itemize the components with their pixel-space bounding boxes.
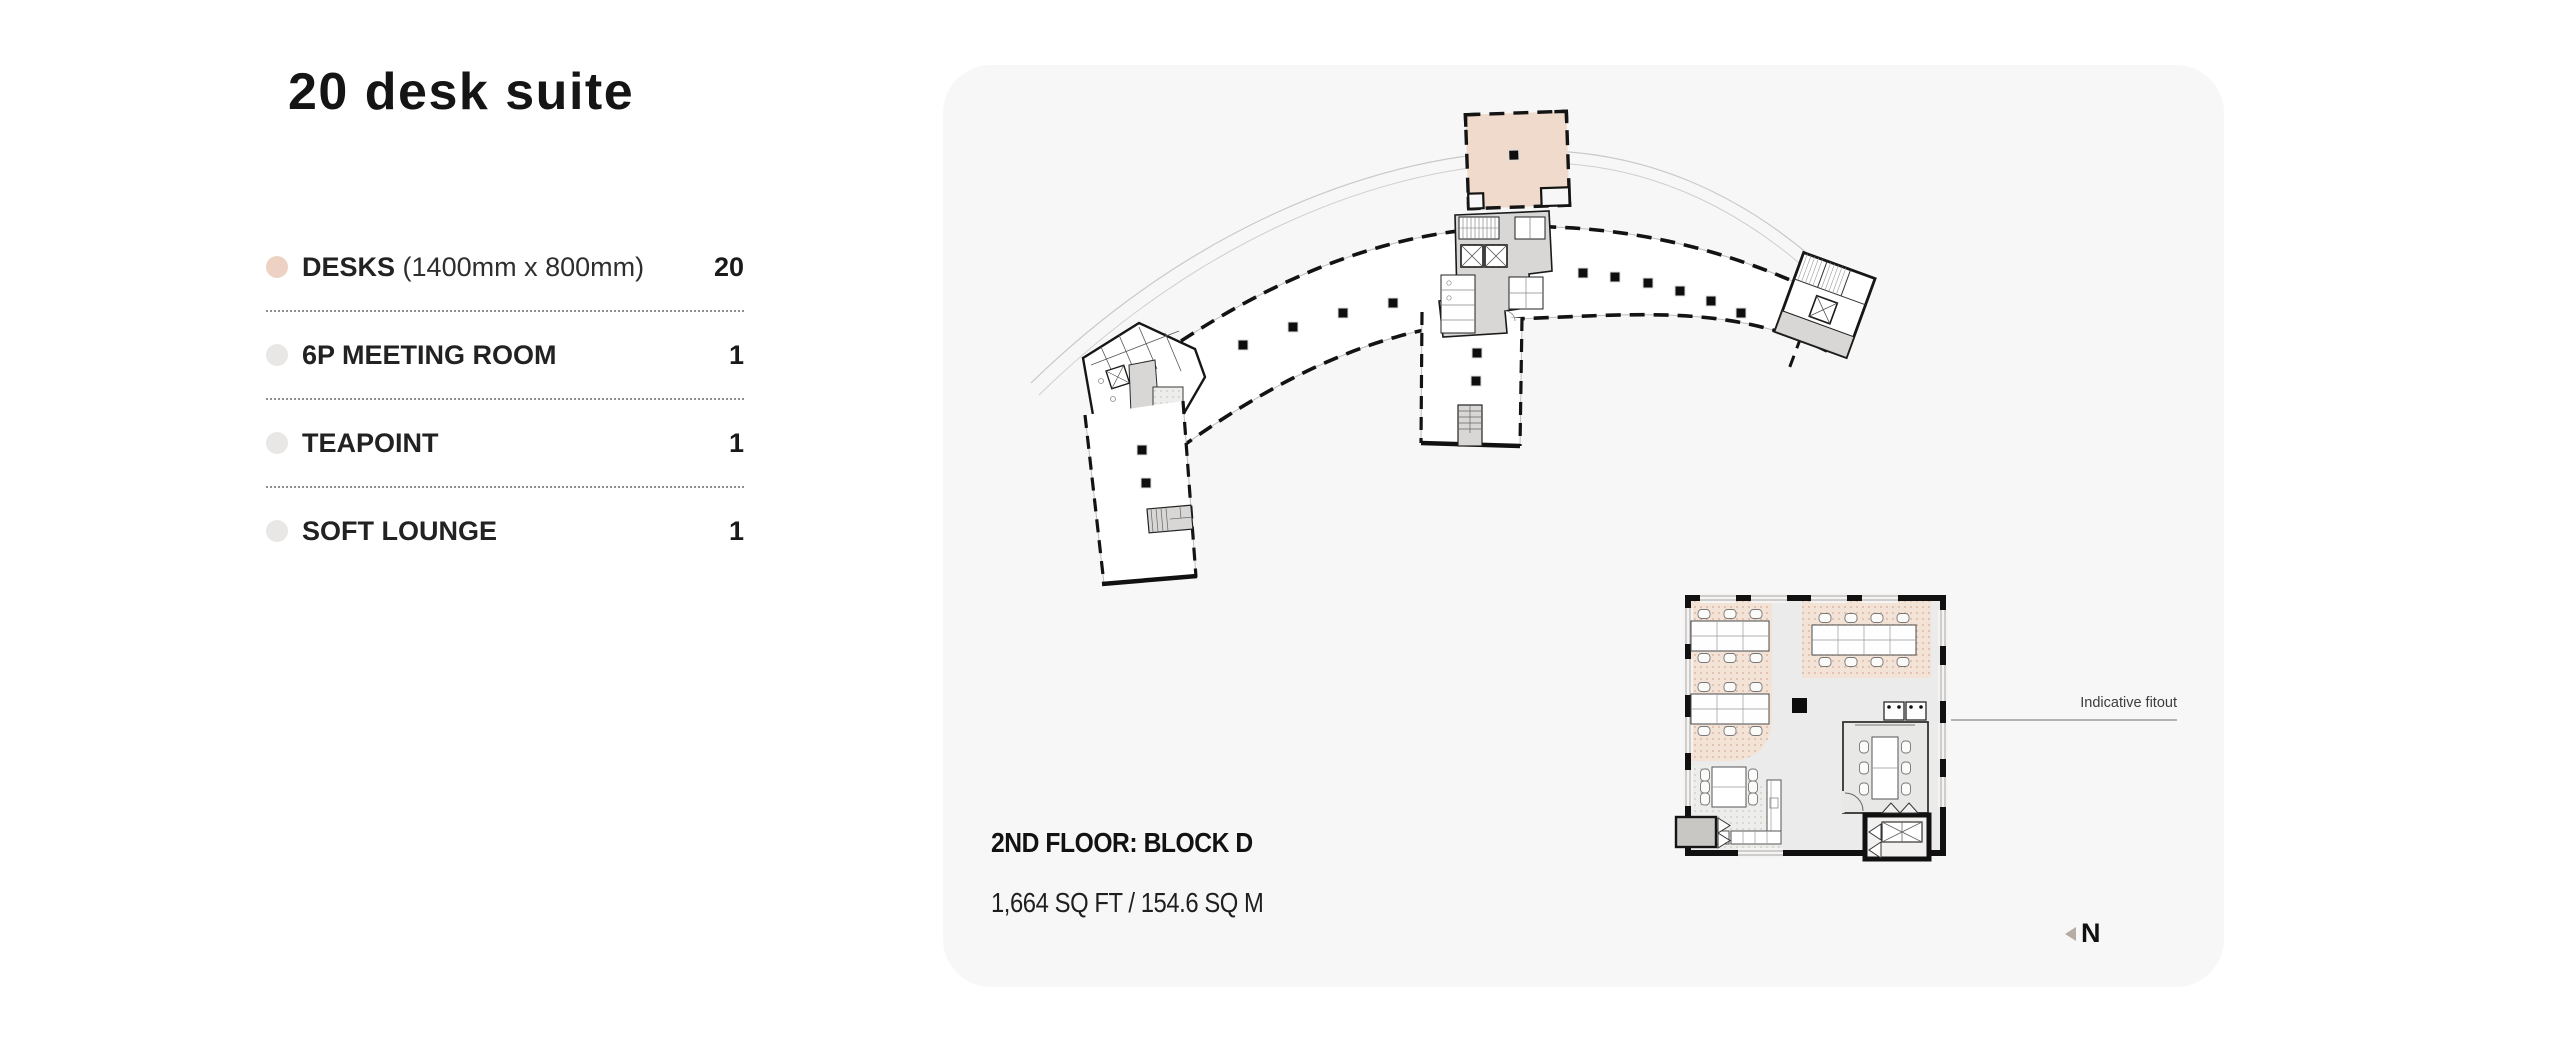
legend-item-detail: (1400mm x 800mm)	[403, 252, 645, 282]
legend-item-value: 20	[714, 252, 744, 283]
structural-column	[1792, 698, 1807, 713]
legend-item-text: TEAPOINT	[302, 428, 439, 459]
legend-item-label: SOFT LOUNGE	[302, 516, 497, 546]
legend-row-meeting-room: 6P MEETING ROOM 1	[266, 312, 744, 398]
legend-item-value: 1	[729, 428, 744, 459]
wing-south-west	[1085, 401, 1197, 584]
legend-item-text: SOFT LOUNGE	[302, 516, 497, 547]
highlighted-suite	[1465, 111, 1569, 208]
legend-row-teapoint: TEAPOINT 1	[266, 400, 744, 486]
legend-row-soft-lounge: SOFT LOUNGE 1	[266, 488, 744, 574]
north-indicator: N	[2065, 918, 2102, 949]
legend-item-value: 1	[729, 516, 744, 547]
floor-label: 2ND FLOOR: BLOCK D	[991, 827, 1253, 859]
desk-cluster-a	[1691, 610, 1769, 663]
legend-item-label: 6P MEETING ROOM	[302, 340, 557, 370]
riser-block	[1676, 817, 1716, 847]
legend-row-desks: DESKS (1400mm x 800mm) 20	[266, 224, 744, 310]
building-core-east	[1775, 253, 1875, 358]
fitout-label: Indicative fitout	[2080, 695, 2177, 711]
legend-item-text: DESKS (1400mm x 800mm)	[302, 252, 644, 283]
page-title: 20 desk suite	[288, 62, 634, 122]
north-label: N	[2081, 918, 2102, 949]
desks-color-dot	[266, 256, 288, 278]
soft-lounge-color-dot	[266, 520, 288, 542]
area-label: 1,664 SQ FT / 154.6 SQ M	[991, 887, 1263, 919]
legend-item-label: TEAPOINT	[302, 428, 439, 458]
north-arrow-icon	[2065, 927, 2076, 941]
meeting-room-color-dot	[266, 344, 288, 366]
floorplan-panel: Indicative fitout 2ND FLOOR: BLOCK D 1,6…	[943, 65, 2224, 987]
detail-plan	[1676, 593, 1948, 859]
legend: DESKS (1400mm x 800mm) 20 6P MEETING ROO…	[266, 224, 744, 574]
teapoint-color-dot	[266, 432, 288, 454]
brochure-page: 20 desk suite DESKS (1400mm x 800mm) 20 …	[0, 0, 2560, 1059]
legend-item-value: 1	[729, 340, 744, 371]
desk-cluster-b	[1691, 683, 1769, 736]
meeting-room	[1843, 722, 1928, 813]
legend-item-text: 6P MEETING ROOM	[302, 340, 557, 371]
legend-item-label: DESKS	[302, 252, 395, 282]
